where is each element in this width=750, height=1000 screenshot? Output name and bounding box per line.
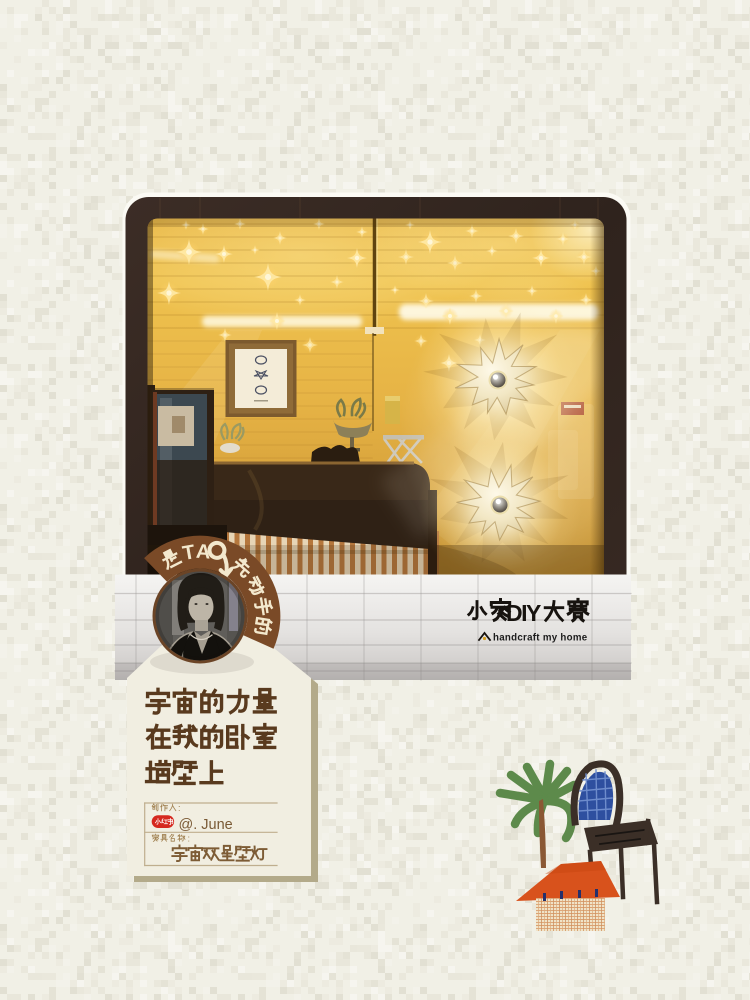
svg-text:handcraft my home: handcraft my home bbox=[493, 633, 588, 644]
svg-text:@. June: @. June bbox=[179, 817, 233, 833]
svg-text::: : bbox=[188, 834, 191, 844]
svg-text:DIY: DIY bbox=[506, 600, 541, 626]
svg-text::: : bbox=[178, 803, 181, 813]
